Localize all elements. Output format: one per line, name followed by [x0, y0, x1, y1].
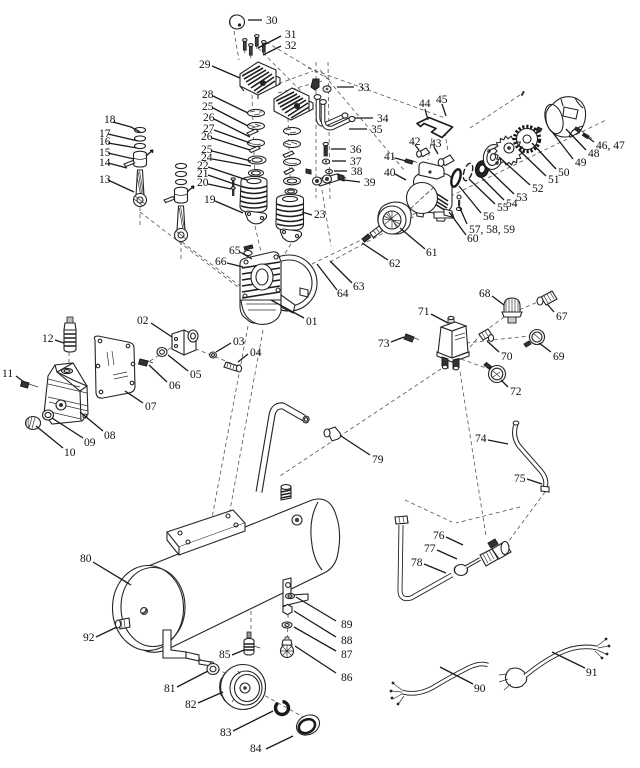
svg-text:89: 89 [341, 619, 353, 631]
svg-text:42: 42 [409, 136, 421, 148]
svg-text:11: 11 [2, 368, 13, 380]
svg-text:19: 19 [204, 194, 216, 206]
svg-text:67: 67 [556, 311, 568, 323]
svg-text:85: 85 [219, 649, 231, 661]
svg-text:74: 74 [475, 433, 487, 445]
svg-text:69: 69 [553, 351, 565, 363]
svg-text:84: 84 [250, 743, 262, 755]
svg-text:91: 91 [586, 667, 598, 679]
svg-text:88: 88 [341, 635, 353, 647]
svg-text:39: 39 [364, 177, 376, 189]
svg-text:63: 63 [353, 281, 365, 293]
svg-text:04: 04 [250, 347, 262, 359]
svg-text:83: 83 [220, 727, 232, 739]
svg-text:78: 78 [411, 557, 423, 569]
svg-text:36: 36 [350, 144, 362, 156]
svg-text:14: 14 [99, 157, 111, 169]
svg-text:71: 71 [418, 306, 430, 318]
svg-text:49: 49 [575, 157, 587, 169]
svg-text:76: 76 [433, 530, 445, 542]
svg-text:75: 75 [514, 473, 526, 485]
svg-text:87: 87 [341, 649, 353, 661]
svg-text:26: 26 [201, 131, 213, 143]
svg-text:73: 73 [378, 338, 390, 350]
svg-text:05: 05 [190, 369, 202, 381]
svg-text:86: 86 [341, 672, 353, 684]
svg-text:07: 07 [145, 401, 157, 413]
svg-text:80: 80 [80, 553, 92, 565]
svg-text:06: 06 [169, 380, 181, 392]
svg-text:10: 10 [64, 447, 76, 459]
svg-text:12: 12 [42, 333, 54, 345]
svg-text:70: 70 [501, 351, 513, 363]
svg-text:45: 45 [436, 94, 448, 106]
svg-text:13: 13 [99, 174, 111, 186]
svg-text:28: 28 [202, 89, 214, 101]
svg-text:60: 60 [467, 233, 479, 245]
svg-text:08: 08 [104, 430, 116, 442]
svg-text:30: 30 [266, 15, 278, 27]
svg-text:43: 43 [430, 138, 442, 150]
svg-text:64: 64 [337, 288, 349, 300]
svg-text:65: 65 [229, 245, 241, 257]
svg-text:44: 44 [419, 98, 431, 110]
svg-text:51: 51 [548, 174, 560, 186]
svg-text:56: 56 [483, 211, 495, 223]
svg-text:90: 90 [474, 683, 486, 695]
svg-text:53: 53 [516, 192, 528, 204]
svg-text:50: 50 [558, 167, 570, 179]
svg-text:66: 66 [215, 256, 227, 268]
svg-text:55: 55 [497, 202, 509, 214]
svg-text:23: 23 [314, 209, 326, 221]
svg-text:62: 62 [389, 258, 401, 270]
svg-text:09: 09 [84, 437, 96, 449]
svg-text:52: 52 [532, 183, 544, 195]
svg-text:61: 61 [426, 247, 438, 259]
svg-text:32: 32 [285, 40, 297, 52]
svg-text:48: 48 [588, 148, 600, 160]
svg-text:20: 20 [197, 177, 209, 189]
svg-text:46, 47: 46, 47 [596, 140, 625, 152]
svg-text:82: 82 [185, 699, 197, 711]
svg-text:35: 35 [371, 124, 383, 136]
svg-text:01: 01 [306, 316, 318, 328]
svg-text:33: 33 [358, 82, 370, 94]
svg-text:29: 29 [199, 59, 211, 71]
svg-text:72: 72 [510, 386, 522, 398]
svg-text:03: 03 [233, 336, 245, 348]
svg-text:18: 18 [104, 114, 116, 126]
svg-text:38: 38 [351, 166, 363, 178]
svg-text:77: 77 [424, 543, 436, 555]
svg-text:81: 81 [164, 683, 176, 695]
svg-text:92: 92 [83, 632, 95, 644]
svg-text:02: 02 [137, 315, 149, 327]
svg-text:79: 79 [372, 454, 384, 466]
svg-text:40: 40 [384, 167, 396, 179]
svg-text:68: 68 [479, 288, 491, 300]
svg-text:41: 41 [384, 151, 396, 163]
